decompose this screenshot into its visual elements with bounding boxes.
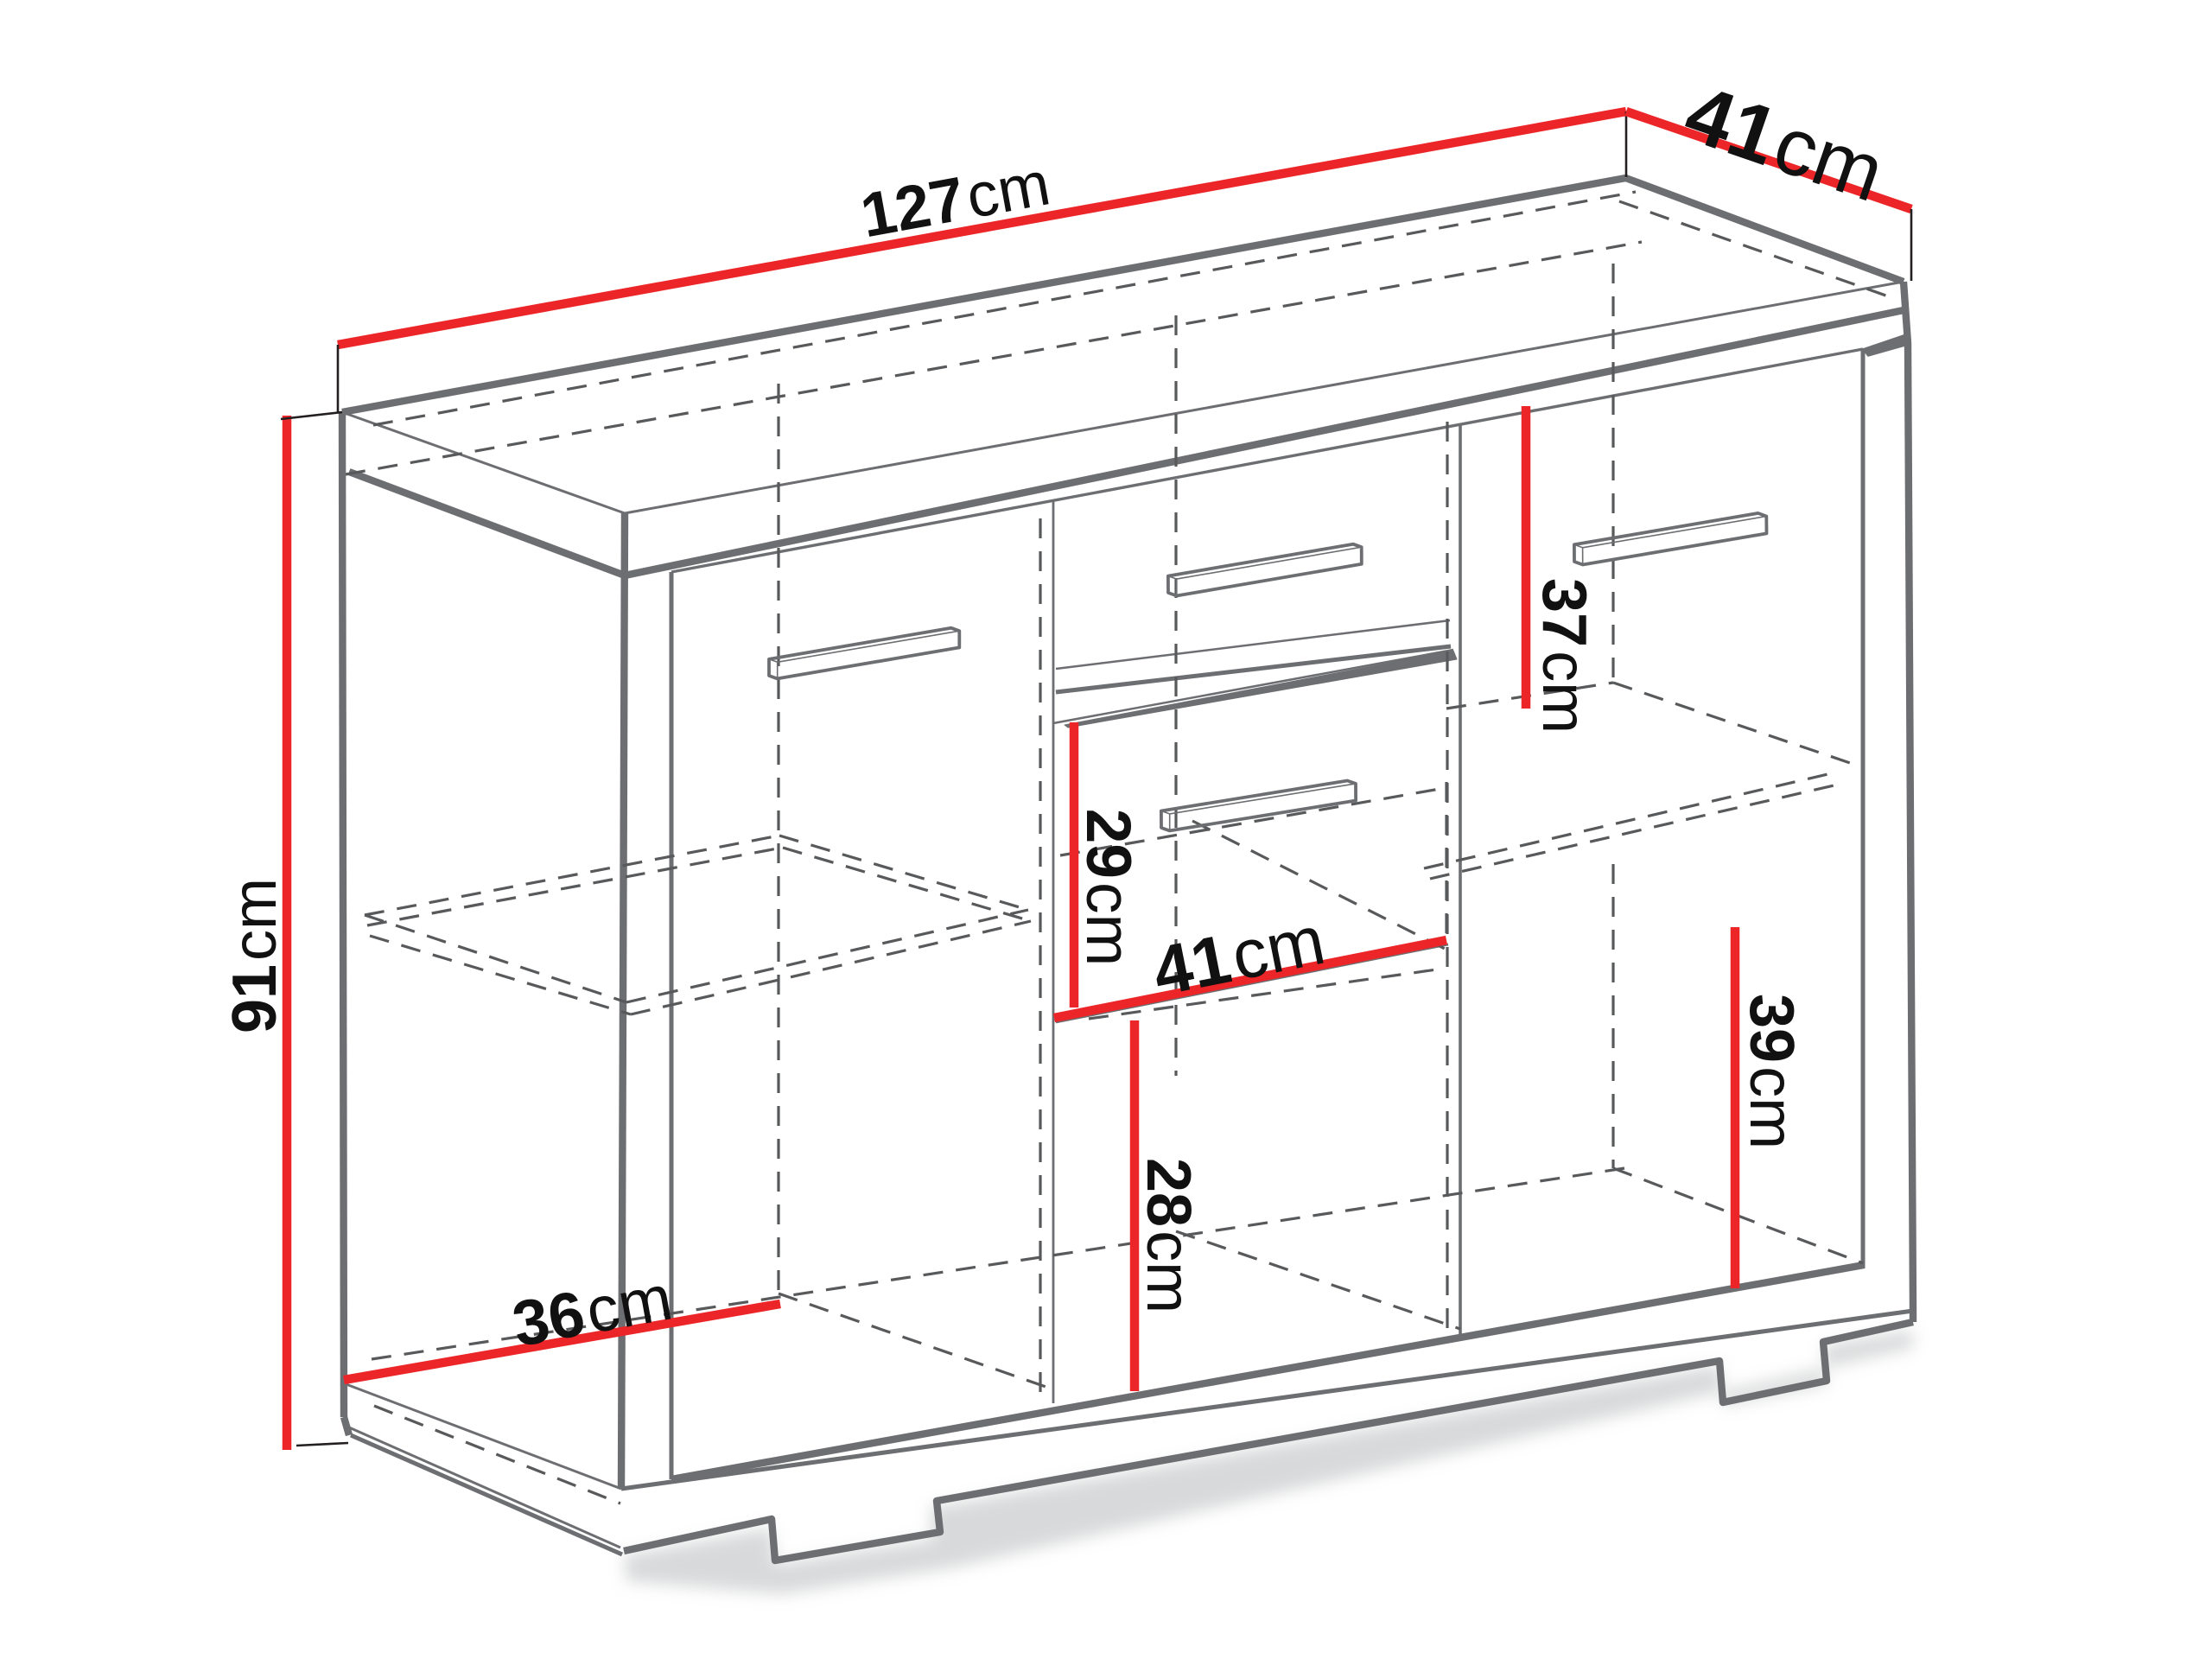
svg-text:29cm: 29cm — [1073, 809, 1143, 967]
svg-text:91cm: 91cm — [220, 878, 289, 1033]
svg-text:28cm: 28cm — [1134, 1158, 1203, 1313]
svg-text:39cm: 39cm — [1737, 994, 1806, 1149]
svg-text:37cm: 37cm — [1529, 578, 1599, 734]
